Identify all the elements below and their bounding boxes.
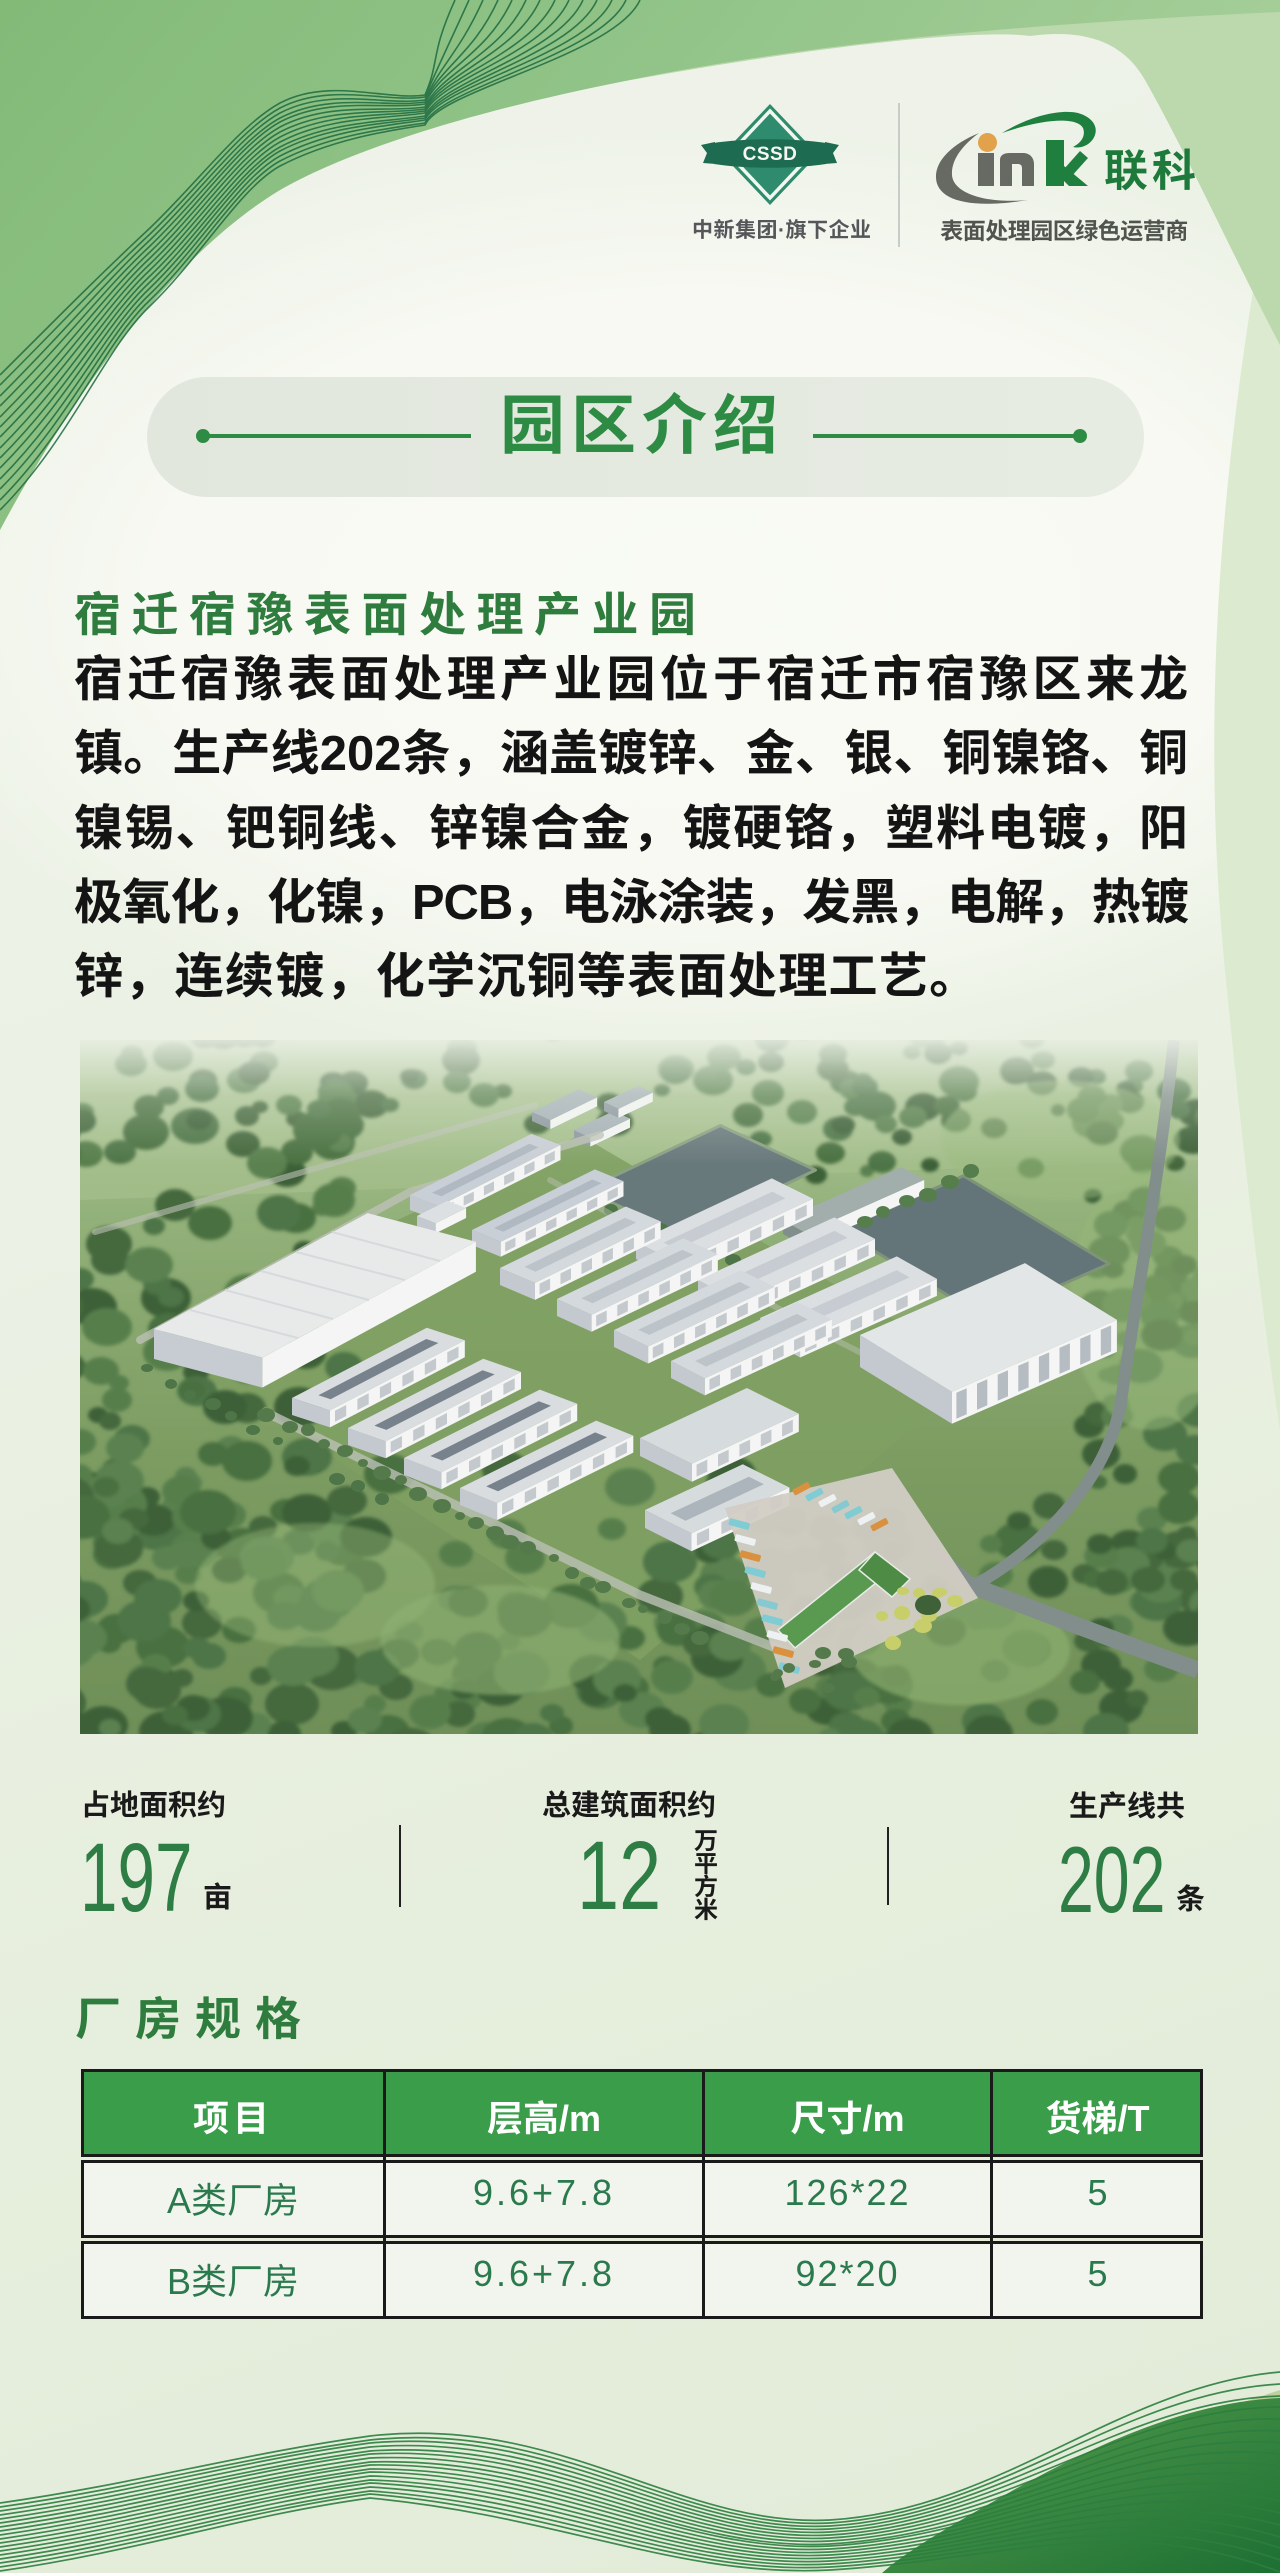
svg-text:联科: 联科 — [1104, 147, 1200, 196]
svg-text:CSSD: CSSD — [743, 144, 798, 165]
